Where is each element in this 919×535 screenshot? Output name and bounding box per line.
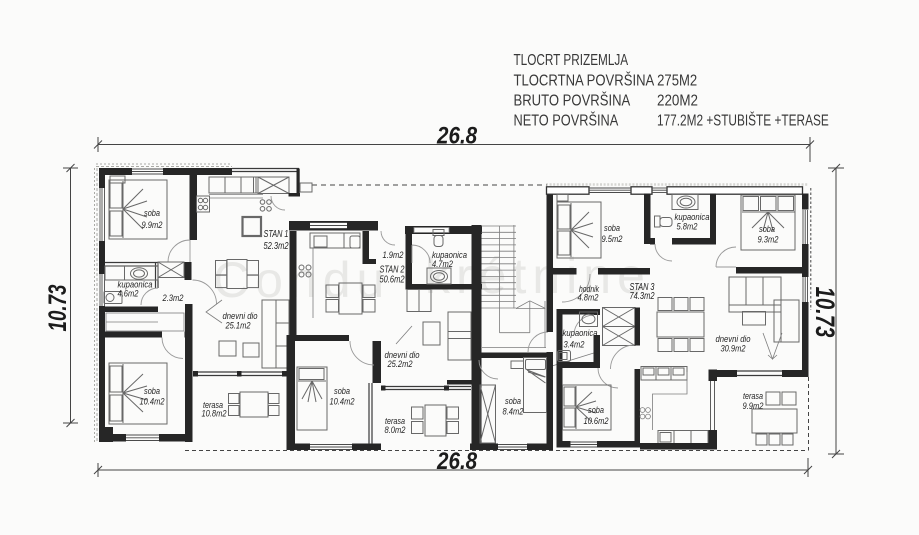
svg-text:3.4m2: 3.4m2 xyxy=(564,340,586,351)
svg-text:TLOCRT PRIZEMLJA: TLOCRT PRIZEMLJA xyxy=(514,51,629,68)
svg-text:soba: soba xyxy=(604,223,620,234)
svg-text:177.2M2 +STUBIŠTE +TERASE: 177.2M2 +STUBIŠTE +TERASE xyxy=(657,111,829,129)
svg-text:STAN 1: STAN 1 xyxy=(264,229,289,240)
svg-text:NETO POVRŠINA: NETO POVRŠINA xyxy=(514,111,619,130)
svg-text:10.4m2: 10.4m2 xyxy=(330,397,356,408)
svg-text:9.9m2: 9.9m2 xyxy=(142,220,164,231)
svg-text:soba: soba xyxy=(144,208,160,219)
svg-text:kupaonica: kupaonica xyxy=(563,328,598,339)
svg-text:25.1m2: 25.1m2 xyxy=(225,321,251,332)
svg-text:10.8m2: 10.8m2 xyxy=(202,409,228,420)
svg-text:4.6m2: 4.6m2 xyxy=(118,289,140,300)
svg-text:10.73: 10.73 xyxy=(809,287,840,338)
svg-text:soba: soba xyxy=(588,405,604,416)
svg-text:10.6m2: 10.6m2 xyxy=(584,416,610,427)
svg-text:5.8m2: 5.8m2 xyxy=(677,222,699,233)
svg-text:8.4m2: 8.4m2 xyxy=(503,407,525,418)
svg-text:TLOCRTNA POVRŠINA 275M2: TLOCRTNA POVRŠINA 275M2 xyxy=(514,71,698,89)
svg-text:30.9m2: 30.9m2 xyxy=(721,344,747,355)
svg-text:52.3m2: 52.3m2 xyxy=(264,241,289,252)
svg-text:1.9m2: 1.9m2 xyxy=(383,250,405,261)
svg-text:9.3m2: 9.3m2 xyxy=(758,235,780,246)
svg-text:2.3m2: 2.3m2 xyxy=(162,293,184,304)
svg-text:74.3m2: 74.3m2 xyxy=(630,291,655,302)
svg-text:soba: soba xyxy=(334,386,350,397)
svg-text:soba: soba xyxy=(144,386,160,397)
svg-text:50.6m2: 50.6m2 xyxy=(380,275,405,286)
svg-text:8.0m2: 8.0m2 xyxy=(385,425,407,436)
svg-text:10.4m2: 10.4m2 xyxy=(140,397,166,408)
svg-text:26.8: 26.8 xyxy=(436,122,478,149)
svg-text:220M2: 220M2 xyxy=(657,93,698,110)
svg-text:25.2m2: 25.2m2 xyxy=(387,359,413,370)
svg-text:9.9m2: 9.9m2 xyxy=(743,401,765,412)
svg-text:soba: soba xyxy=(759,224,775,235)
svg-text:4.8m2: 4.8m2 xyxy=(578,293,600,304)
svg-text:BRUTO POVRŠINA: BRUTO POVRŠINA xyxy=(514,91,631,109)
svg-text:9.5m2: 9.5m2 xyxy=(602,234,624,245)
svg-text:26.8: 26.8 xyxy=(436,448,478,475)
svg-text:10.73: 10.73 xyxy=(43,284,71,331)
svg-text:soba: soba xyxy=(505,396,521,407)
svg-text:4.7m2: 4.7m2 xyxy=(432,259,454,270)
